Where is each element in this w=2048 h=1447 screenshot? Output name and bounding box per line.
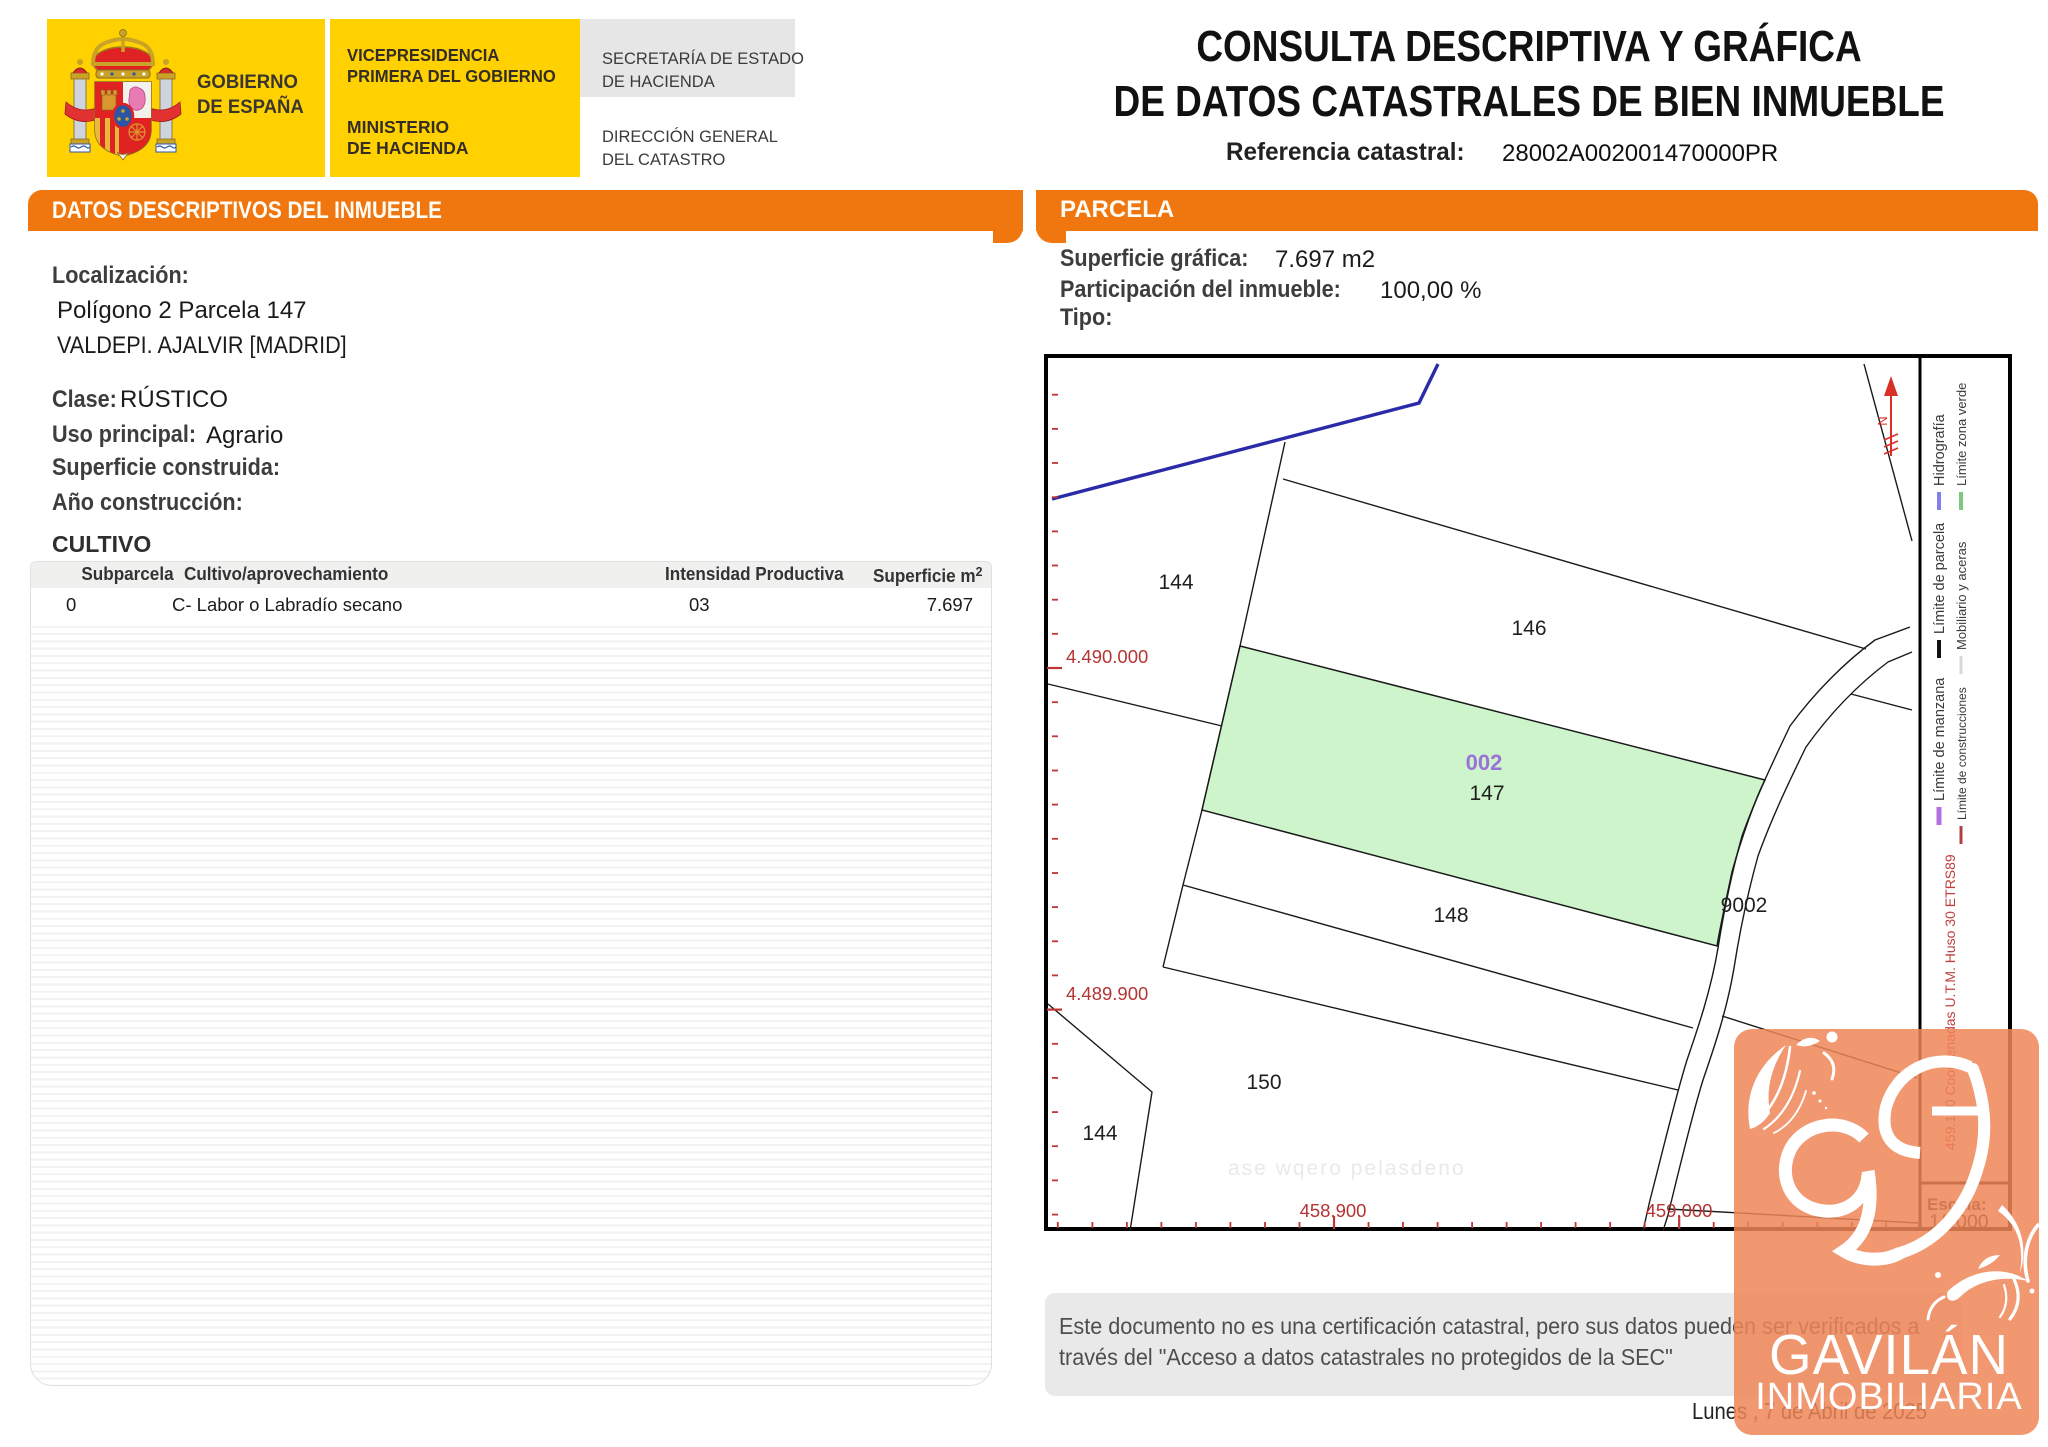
svg-text:144: 144 <box>1082 1122 1117 1145</box>
svg-text:144: 144 <box>1158 571 1193 594</box>
svg-text:Hidrografía: Hidrografía <box>1932 413 1948 486</box>
svg-text:4.489.900: 4.489.900 <box>1066 983 1148 1004</box>
svg-text:4.490.000: 4.490.000 <box>1066 646 1148 667</box>
svg-text:002: 002 <box>1466 750 1503 775</box>
svg-text:459.000: 459.000 <box>1646 1200 1713 1221</box>
svg-text:148: 148 <box>1433 904 1468 927</box>
svg-text:Mobiliario y aceras: Mobiliario y aceras <box>1954 541 1969 650</box>
svg-text:9002: 9002 <box>1721 894 1768 917</box>
svg-text:Límite de construcciones: Límite de construcciones <box>1955 687 1969 820</box>
svg-text:Límite de manzana: Límite de manzana <box>1932 677 1948 801</box>
svg-text:ase wqero pelasdeno: ase wqero pelasdeno <box>1228 1157 1466 1180</box>
svg-text:Límite de parcela: Límite de parcela <box>1932 522 1948 634</box>
svg-text:458.900: 458.900 <box>1300 1200 1367 1221</box>
svg-text:Límite zona verde: Límite zona verde <box>1954 383 1969 486</box>
svg-text:147: 147 <box>1469 782 1504 805</box>
svg-text:N: N <box>1875 416 1890 425</box>
svg-text:146: 146 <box>1511 617 1546 640</box>
svg-text:150: 150 <box>1246 1071 1281 1094</box>
